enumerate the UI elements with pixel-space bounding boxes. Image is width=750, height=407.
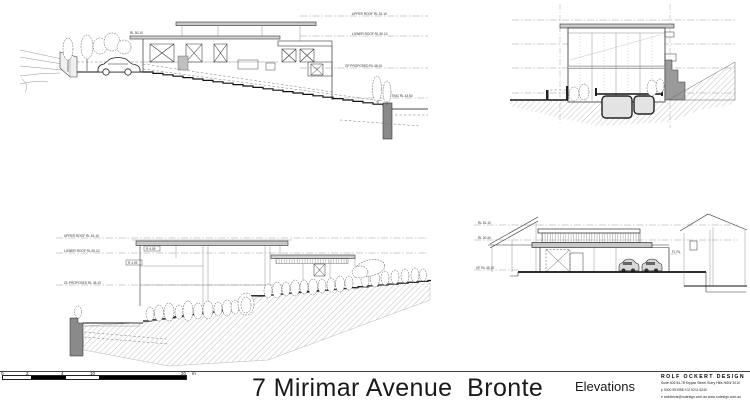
entry-door — [570, 253, 583, 272]
section-drawing — [500, 0, 745, 145]
car-icon — [642, 259, 662, 273]
scale-label-2: 2 — [26, 372, 29, 377]
car-icon — [619, 259, 639, 273]
clerestory-band — [276, 259, 348, 264]
window-x — [150, 44, 174, 62]
window-x — [300, 49, 314, 62]
title-block: ROLF OCKERT DESIGN Suite 406 54-78 Kippa… — [661, 374, 749, 400]
shrub-icon — [117, 40, 131, 54]
rl-note: R 4.09 — [146, 247, 156, 251]
shrub-icon — [569, 87, 579, 101]
rl-note: R 4.09 — [128, 261, 138, 265]
upper-roof — [538, 229, 640, 233]
tall-shrub-icon — [383, 81, 391, 103]
wall-panel — [178, 56, 188, 70]
firm-email-website: e architects@rodesign.com.au www.rodesig… — [661, 395, 749, 401]
window-x — [214, 44, 227, 62]
retaining-wall — [70, 318, 83, 356]
window-x — [282, 49, 296, 62]
tall-shrub-icon — [373, 76, 382, 102]
roof-slab — [560, 24, 674, 28]
level-label: UPPER ROOF RL 51.10 — [352, 12, 387, 16]
footer-rule — [0, 371, 750, 372]
drawing-name: Elevations — [575, 379, 635, 394]
street-elevation-drawing: RL 51.10 RL 50.40 GF RL 45.10 FL RL — [466, 196, 750, 308]
scribble-tree-icon — [352, 266, 368, 278]
level-label: GL PROPOSED RL 45.10 — [64, 281, 101, 285]
clerestory-band — [542, 233, 640, 243]
side-elevation-drawing: UPPER ROOF RL 51.10 LOWER ROOF RL 50.10 … — [18, 208, 448, 370]
main-roof-slab — [532, 243, 652, 248]
level-label: FL RL — [672, 250, 681, 254]
firm-phone: p 0400 991958 f 02 9211 5240 — [661, 388, 749, 394]
shrub-icon — [647, 80, 657, 96]
side-roof-band — [278, 41, 332, 46]
rl-note: RL 50.10 — [130, 31, 143, 35]
scale-label-4: 4 — [61, 372, 64, 377]
retaining-wall — [383, 103, 392, 139]
level-label: RL 51.10 — [478, 221, 491, 225]
window-x — [186, 44, 202, 62]
scale-label-0: 0 — [1, 372, 4, 377]
spa-outline — [634, 96, 654, 114]
upper-roof-slab — [176, 22, 316, 26]
tree-icon — [81, 35, 93, 59]
window-x — [311, 64, 323, 75]
scale-unit: m — [192, 372, 196, 377]
level-label: RL 50.40 — [478, 236, 491, 240]
level-label: UPPER ROOF RL 51.10 — [64, 234, 99, 238]
window-x — [314, 264, 325, 276]
level-label: GF RL 45.10 — [476, 266, 494, 270]
sheet-title: 7 Mirimar Avenue Bronte — [252, 374, 543, 403]
level-label: GF PROPOSED RL 46.10 — [345, 64, 382, 68]
second-roof-slab — [271, 255, 355, 259]
car-icon — [98, 58, 140, 76]
soil-hatch — [83, 281, 430, 366]
elevation-sheet: UPPER ROOF RL 51.10 LOWER ROOF RL 50.10 … — [0, 0, 750, 407]
north-elevation-drawing: UPPER ROOF RL 51.10 LOWER ROOF RL 50.10 … — [0, 0, 430, 150]
main-roof-slab — [136, 241, 288, 246]
level-label: LOWER ROOF RL 50.10 — [352, 32, 388, 36]
pool-outline — [602, 96, 632, 118]
street-lines — [20, 50, 62, 92]
firm-address: Suite 406 54-78 Kippax Street Surry Hill… — [661, 381, 749, 387]
level-label: LOWER ROOF RL 50.10 — [64, 249, 100, 253]
scale-label-20: 20 — [181, 372, 186, 377]
tree-icon — [63, 38, 73, 60]
scale-label-10: 10 — [90, 372, 95, 377]
shrub-icon — [579, 84, 589, 100]
lower-roof-slab — [130, 36, 280, 39]
firm-name: ROLF OCKERT DESIGN — [661, 374, 749, 380]
stepped-ground-line — [143, 72, 383, 106]
shrub-icon — [656, 79, 664, 93]
